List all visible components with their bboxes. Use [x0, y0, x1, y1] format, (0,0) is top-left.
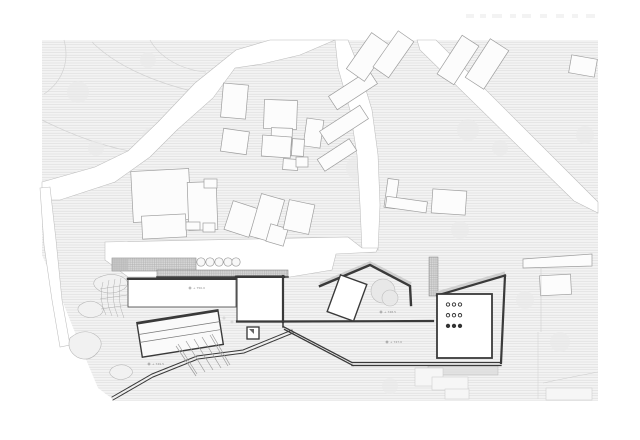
pavilion-dot-grid [446, 303, 461, 328]
faint-header-marks [466, 14, 595, 18]
wall-hatch-strip [429, 257, 438, 296]
bar-building [128, 278, 236, 307]
building-footprint [296, 157, 308, 167]
annex-building [237, 276, 283, 322]
building-footprint [291, 139, 304, 157]
building-footprint [539, 274, 571, 296]
svg-text:+ 749.5: + 749.5 [152, 362, 164, 366]
tree-row [197, 258, 240, 266]
building-footprint [203, 223, 215, 232]
building-footprint [141, 214, 186, 239]
building-footprint [220, 128, 249, 154]
terrain-hatch [42, 40, 598, 401]
site-plan-drawing: + 750.0+ 748.5+ 747.0+ 749.5 [0, 0, 640, 440]
building-footprint [263, 99, 297, 129]
building-footprint [186, 222, 200, 230]
building-footprint [204, 179, 217, 188]
building-footprint [221, 83, 249, 119]
building-footprint [261, 135, 291, 158]
building-footprint [431, 189, 467, 215]
courtyard-tree [382, 290, 398, 306]
courtyard-wall-top [283, 321, 433, 322]
pavilion-building [437, 294, 492, 358]
svg-text:+ 750.0: + 750.0 [193, 286, 205, 290]
svg-text:+ 748.5: + 748.5 [384, 310, 396, 314]
svg-text:+ 747.0: + 747.0 [390, 340, 402, 344]
